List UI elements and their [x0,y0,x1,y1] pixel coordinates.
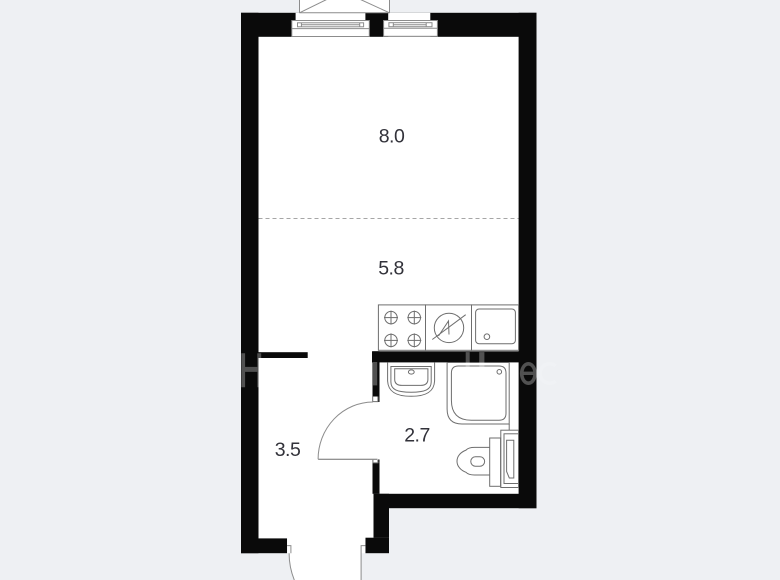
svg-text:2.7: 2.7 [404,425,430,447]
svg-text:5.8: 5.8 [378,258,404,280]
svg-text:3.5: 3.5 [275,439,301,461]
svg-text:8.0: 8.0 [379,126,405,148]
